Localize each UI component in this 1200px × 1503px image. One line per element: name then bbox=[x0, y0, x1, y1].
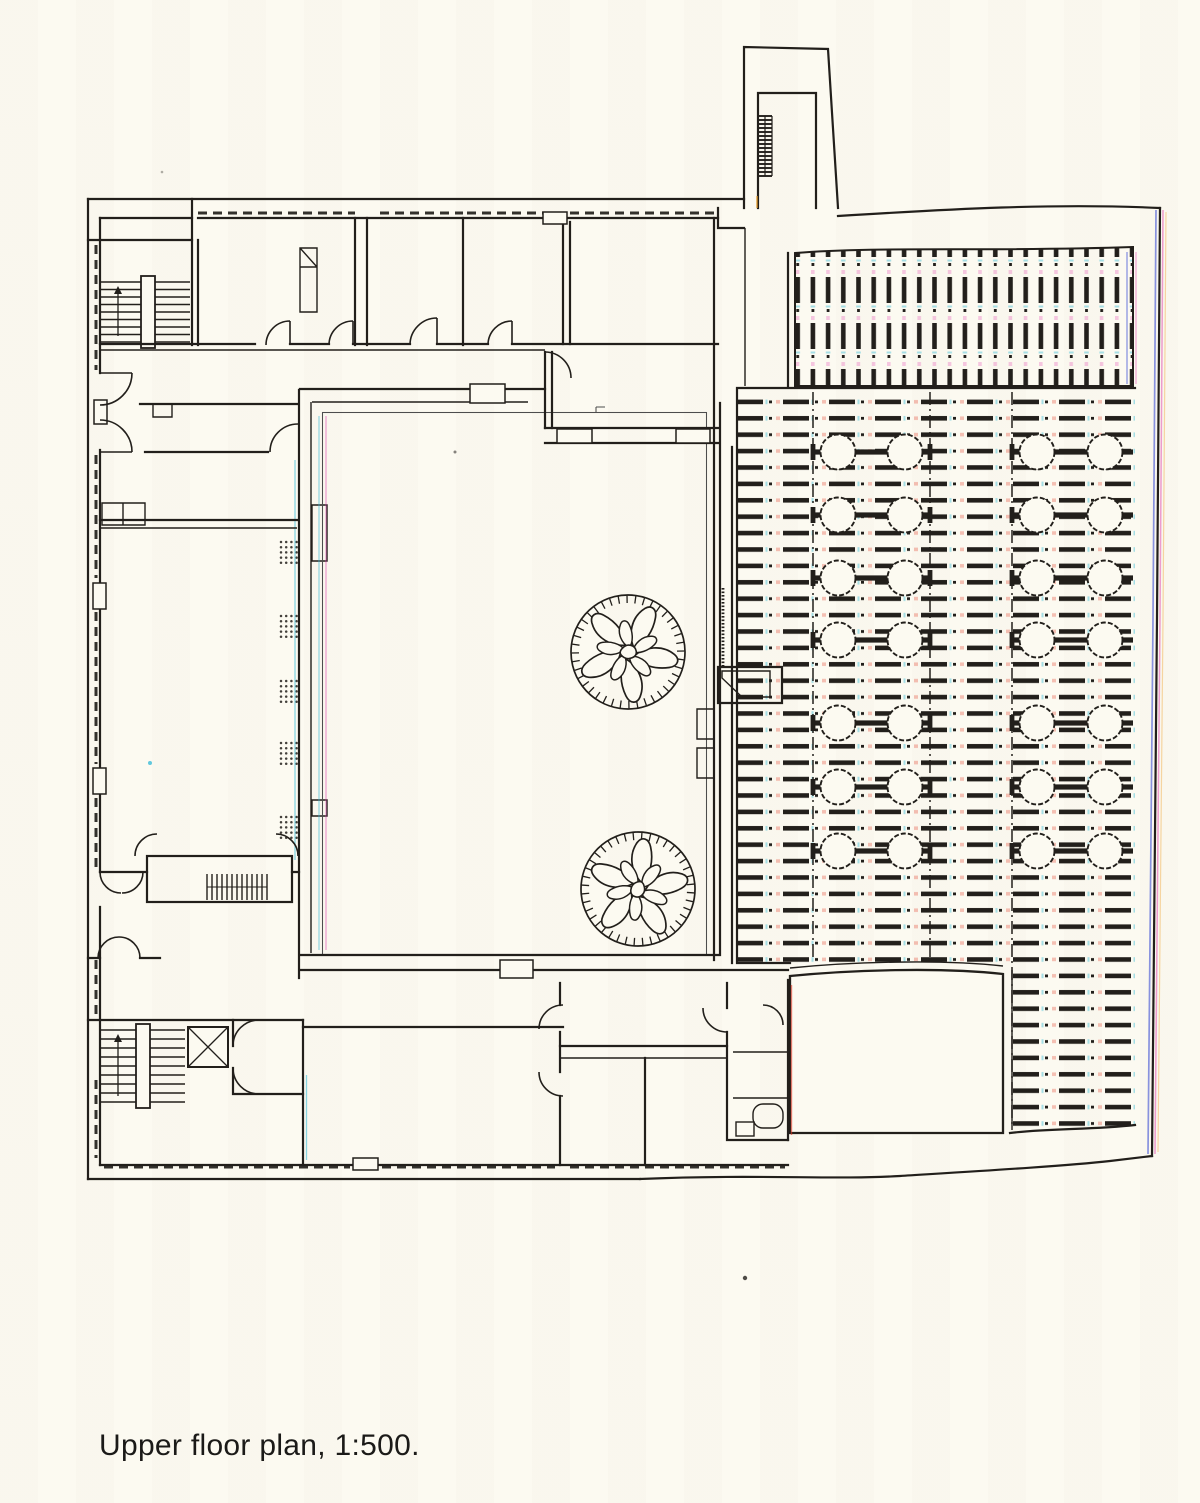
scan-specks bbox=[148, 171, 747, 1281]
tower-ladder bbox=[758, 116, 772, 176]
louver-roof-hatch bbox=[788, 247, 1136, 386]
hall-west bbox=[100, 503, 299, 902]
floor-plan-drawing bbox=[0, 0, 1200, 1503]
caption: Upper floor plan, 1:500. bbox=[99, 1429, 420, 1463]
tree-symbol bbox=[564, 588, 693, 717]
stair-south-west bbox=[100, 1024, 185, 1108]
south-rooms bbox=[88, 980, 792, 1165]
stair-hall-south bbox=[207, 874, 267, 900]
stair-north-west bbox=[100, 276, 190, 348]
west-corridor bbox=[140, 390, 299, 978]
window-glazing bbox=[96, 213, 785, 1167]
roof-stair-tower bbox=[718, 47, 838, 228]
elevator-shaft bbox=[188, 1027, 228, 1067]
scanned-page: Upper floor plan, 1:500. bbox=[0, 0, 1200, 1503]
north-west-rooms bbox=[100, 218, 718, 960]
tree-symbol bbox=[558, 809, 719, 970]
